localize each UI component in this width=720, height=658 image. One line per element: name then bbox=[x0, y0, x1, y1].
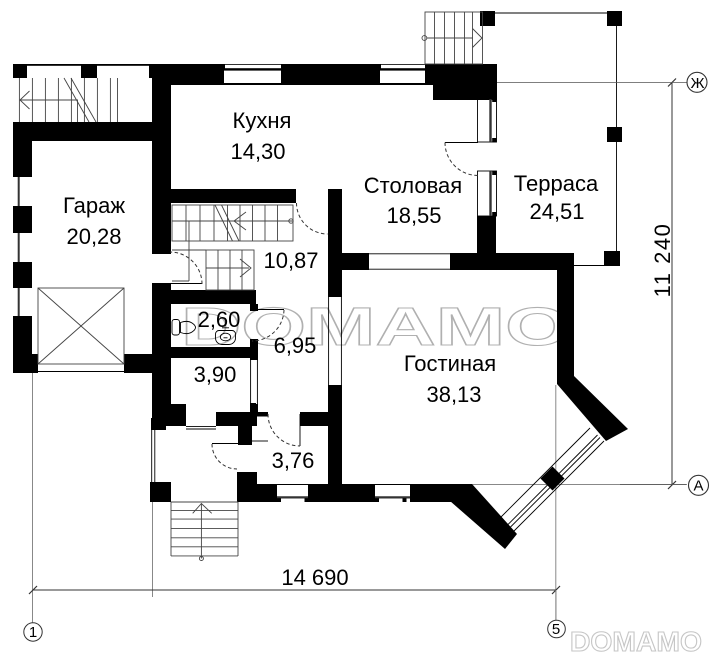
svg-text:5: 5 bbox=[552, 621, 560, 638]
svg-text:1: 1 bbox=[29, 624, 37, 641]
svg-text:14 690: 14 690 bbox=[281, 565, 348, 590]
svg-text:18,55: 18,55 bbox=[386, 203, 441, 228]
svg-text:Терраса: Терраса bbox=[514, 171, 599, 196]
svg-text:Ж: Ж bbox=[691, 75, 705, 92]
svg-text:DOMAMO: DOMAMO bbox=[570, 626, 702, 657]
svg-text:3,76: 3,76 bbox=[272, 448, 315, 473]
svg-text:20,28: 20,28 bbox=[66, 224, 121, 249]
svg-text:Гостиная: Гостиная bbox=[404, 351, 496, 376]
svg-text:Столовая: Столовая bbox=[364, 173, 462, 198]
svg-text:38,13: 38,13 bbox=[426, 382, 481, 407]
svg-text:2,60: 2,60 bbox=[198, 307, 241, 332]
svg-text:6,95: 6,95 bbox=[274, 333, 317, 358]
svg-text:14,30: 14,30 bbox=[230, 139, 285, 164]
svg-text:10,87: 10,87 bbox=[263, 248, 318, 273]
svg-text:А: А bbox=[693, 478, 703, 495]
svg-text:Гараж: Гараж bbox=[63, 193, 125, 218]
svg-text:3,90: 3,90 bbox=[194, 362, 237, 387]
svg-text:24,51: 24,51 bbox=[529, 199, 584, 224]
svg-text:11 240: 11 240 bbox=[650, 223, 675, 298]
svg-text:Кухня: Кухня bbox=[233, 108, 292, 133]
